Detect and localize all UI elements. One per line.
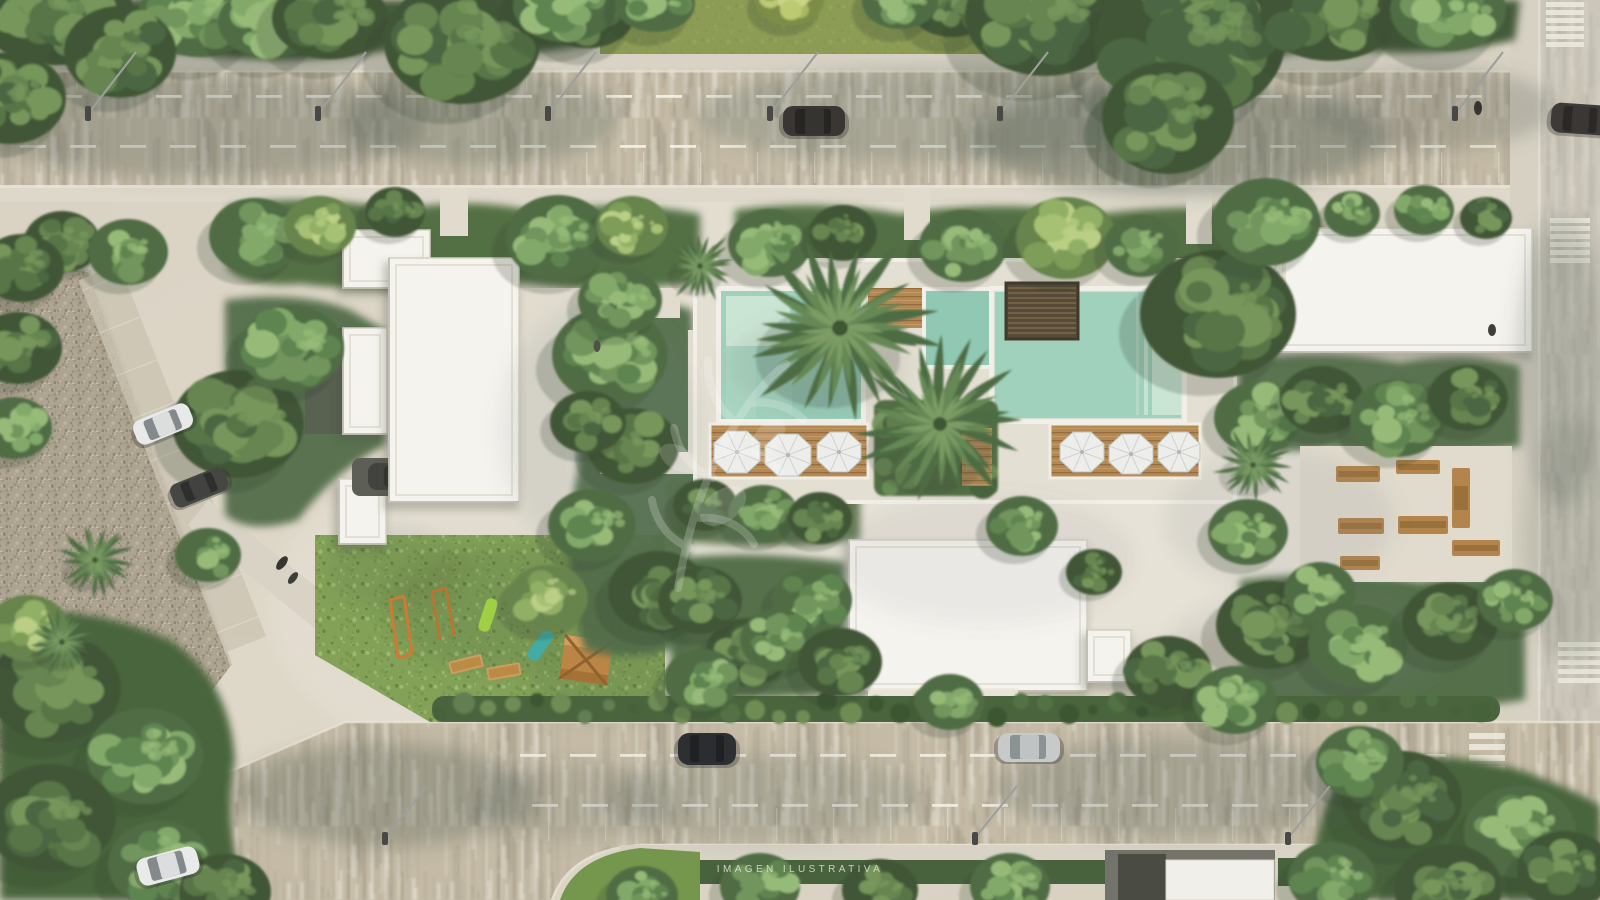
svg-text:IMAGEN ILUSTRATIVA: IMAGEN ILUSTRATIVA: [717, 864, 883, 875]
